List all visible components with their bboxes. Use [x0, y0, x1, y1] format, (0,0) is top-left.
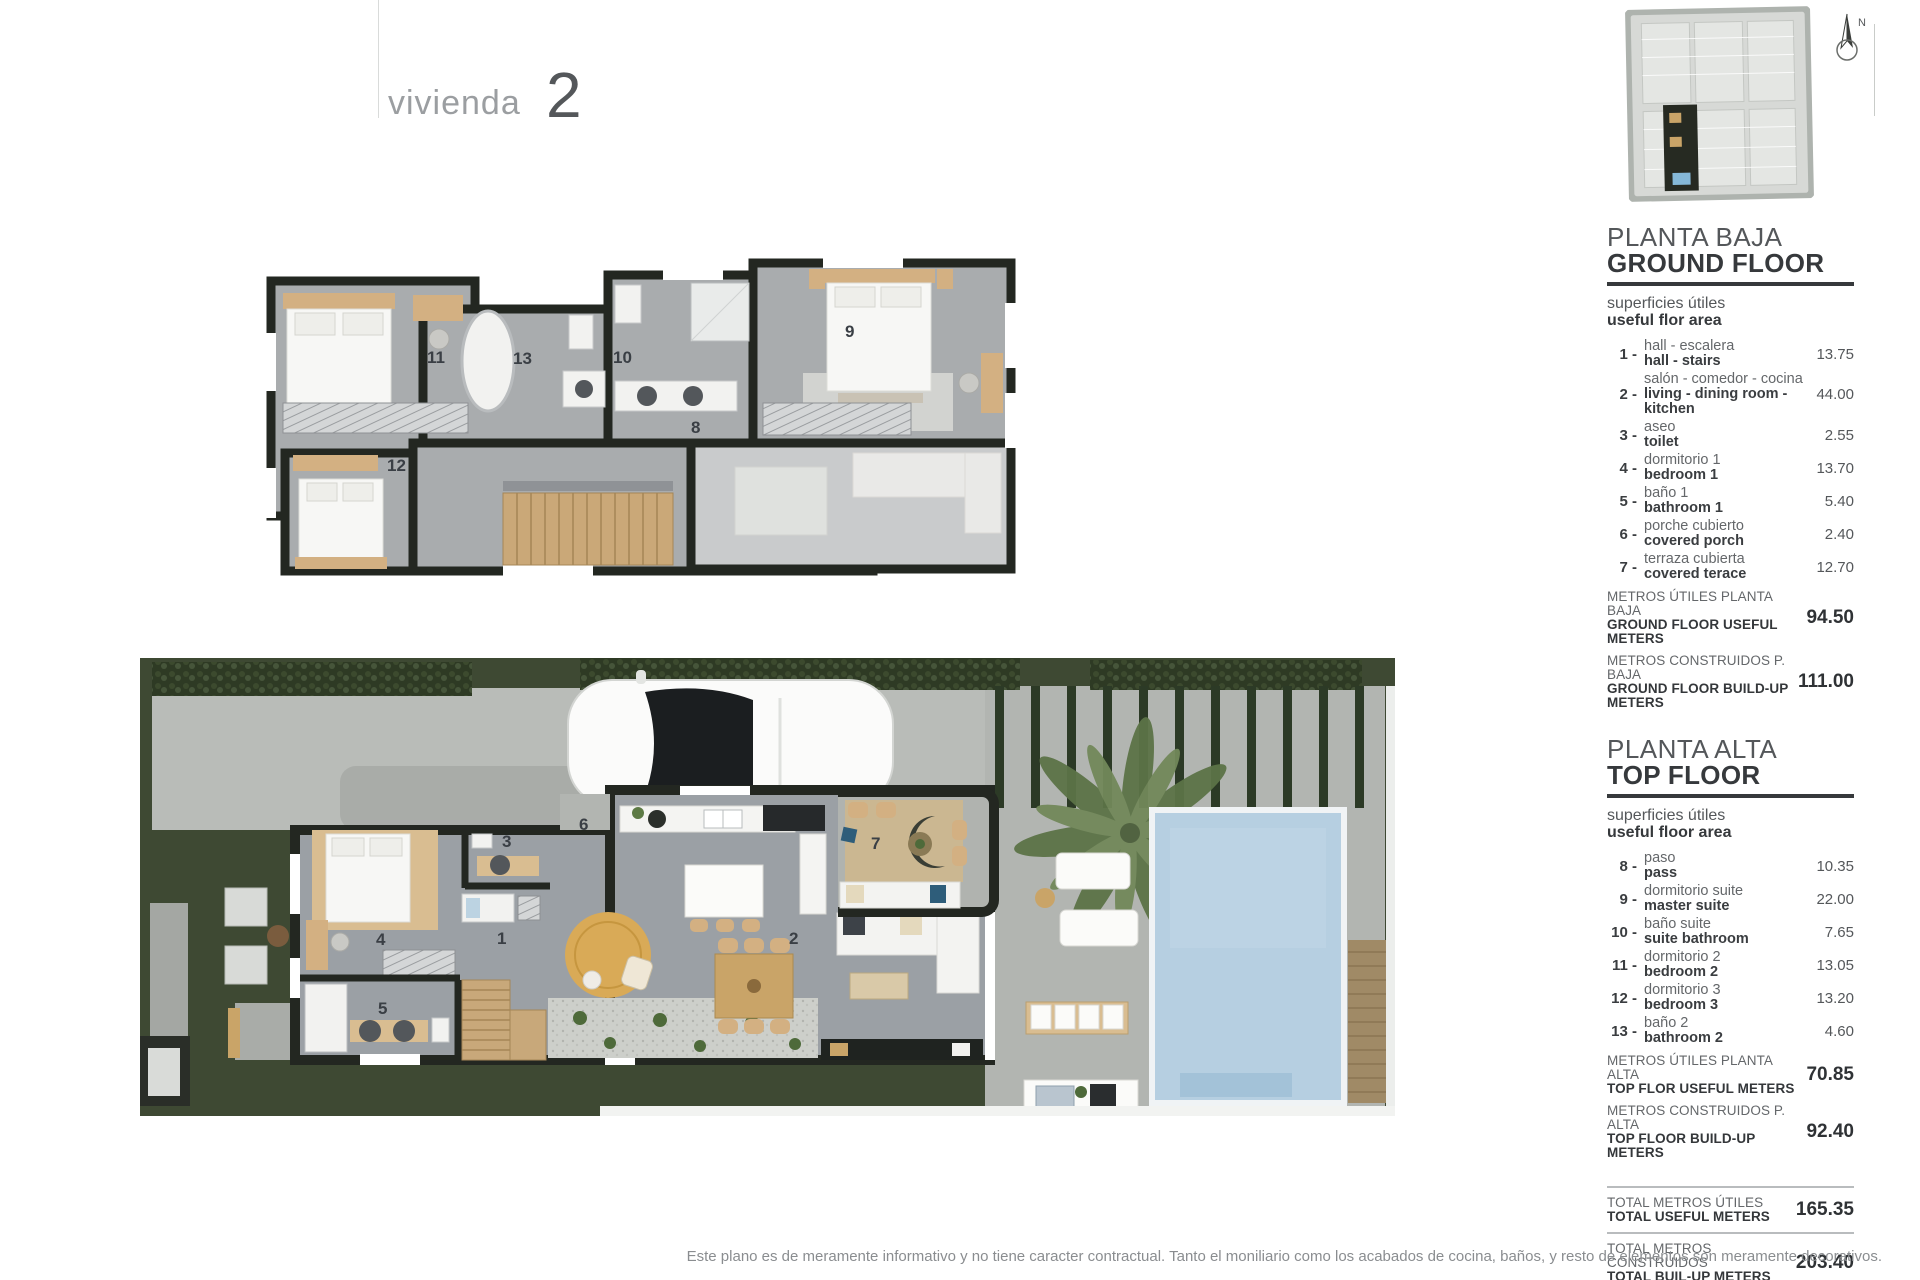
staircase	[503, 481, 673, 565]
hob	[648, 810, 666, 828]
area-row: 12 - dormitorio 3bedroom 3 13.20	[1607, 983, 1854, 1013]
row-label-en: bedroom 1	[1644, 468, 1806, 483]
floor-total-row: METROS ÚTILES PLANTA ALTATOP FLOR USEFUL…	[1607, 1054, 1854, 1096]
kitchen-appliance-block	[763, 805, 825, 831]
garden-table	[267, 925, 289, 947]
room-label-4: 4	[376, 930, 386, 949]
sink	[683, 386, 703, 406]
total-value: 94.50	[1796, 607, 1854, 629]
hedge	[152, 662, 472, 696]
sink	[575, 380, 593, 398]
total-label-es: TOTAL METROS ÚTILES	[1607, 1196, 1796, 1210]
title-divider	[378, 0, 379, 118]
room-label-5: 5	[378, 999, 387, 1018]
row-number: 10 -	[1607, 924, 1637, 941]
row-label-es: dormitorio 2	[1644, 950, 1806, 965]
total-label-en: TOP FLOR USEFUL METERS	[1607, 1082, 1796, 1096]
row-value: 5.40	[1806, 493, 1854, 510]
row-label-en: living - dining room - kitchen	[1644, 387, 1806, 417]
row-value: 13.05	[1806, 957, 1854, 974]
pouf	[583, 971, 601, 989]
row-label-es: paso	[1644, 851, 1806, 866]
total-value: 92.40	[1796, 1121, 1854, 1143]
compass-icon: N	[1830, 12, 1876, 68]
row-value: 13.20	[1806, 990, 1854, 1007]
row-label-en: covered porch	[1644, 534, 1806, 549]
row-label-es: dormitorio suite	[1644, 884, 1806, 899]
area-row: 5 - baño 1bathroom 1 5.40	[1607, 486, 1854, 516]
window	[265, 333, 276, 391]
room-label-2: 2	[789, 929, 798, 948]
area-row: 13 - baño 2bathroom 2 4.60	[1607, 1016, 1854, 1046]
row-label-es: hall - escalera	[1644, 339, 1806, 354]
gate-leaf	[148, 1048, 180, 1096]
total-value: 165.35	[1796, 1199, 1854, 1221]
chair	[429, 329, 449, 349]
window	[360, 1054, 420, 1065]
row-label-en: hall - stairs	[1644, 354, 1806, 369]
stools	[690, 919, 760, 932]
total-label-es: METROS ÚTILES PLANTA ALTA	[1607, 1054, 1796, 1082]
room-label-6: 6	[579, 815, 588, 834]
room-label-12: 12	[387, 456, 406, 475]
total-label-es: METROS CONSTRUIDOS P. BAJA	[1607, 654, 1796, 682]
plot-wall	[600, 1106, 1395, 1116]
area-row: 4 - dormitorio 1bedroom 1 13.70	[1607, 453, 1854, 483]
section-title-es: PLANTA ALTA	[1607, 736, 1854, 762]
desk	[981, 353, 1003, 413]
row-label-en: covered terace	[1644, 567, 1806, 582]
closet	[518, 896, 540, 920]
desk	[293, 455, 378, 471]
hedge	[1090, 660, 1362, 690]
room-label-3: 3	[502, 832, 511, 851]
chair	[959, 373, 979, 393]
garden-armchair	[225, 946, 267, 984]
row-label-en: bathroom 1	[1644, 501, 1806, 516]
room-label-1: 1	[497, 929, 506, 948]
room-label-10: 10	[613, 348, 632, 367]
room-label-9: 9	[845, 322, 854, 341]
total-label-es: METROS ÚTILES PLANTA BAJA	[1607, 590, 1796, 618]
garden-gate	[228, 1008, 240, 1058]
row-number: 4 -	[1607, 460, 1637, 477]
page-title: vivienda	[388, 84, 521, 123]
row-label-es: aseo	[1644, 420, 1806, 435]
highlighted-unit	[1663, 104, 1699, 191]
row-number: 1 -	[1607, 346, 1637, 363]
plot-wall	[1386, 686, 1395, 1106]
wardrobe	[283, 403, 468, 433]
chair	[331, 933, 349, 951]
row-value: 13.70	[1806, 460, 1854, 477]
bed	[312, 830, 438, 930]
subtitle-es: superficies útiles	[1607, 807, 1854, 824]
unit-number: 2	[546, 58, 582, 132]
row-number: 6 -	[1607, 526, 1637, 543]
row-label-es: salón - comedor - cocina	[1644, 372, 1806, 387]
brochure-page: vivienda 2	[0, 0, 1920, 1280]
subtitle-en: useful floor area	[1607, 824, 1854, 841]
toilet	[432, 1018, 449, 1042]
row-label-es: baño 1	[1644, 486, 1806, 501]
room-label-11: 11	[427, 348, 445, 367]
sun-lounger	[1056, 853, 1130, 889]
sink	[637, 386, 657, 406]
top-floor-plan: 11 13 10 9 8 12	[263, 253, 1018, 578]
side-entry-pad	[235, 1003, 295, 1060]
toilet	[615, 285, 641, 323]
area-row: 11 - dormitorio 2bedroom 2 13.05	[1607, 950, 1854, 980]
total-label-es: METROS CONSTRUIDOS P. ALTA	[1607, 1104, 1796, 1132]
divider-line	[1874, 24, 1875, 116]
row-number: 9 -	[1607, 891, 1637, 908]
divider	[1607, 1232, 1854, 1234]
row-value: 10.35	[1806, 858, 1854, 875]
bed	[283, 293, 395, 421]
bed	[809, 269, 953, 403]
ground-floor-plan: 1 2 3 4 5 6 7	[140, 658, 1395, 1116]
row-label-es: baño suite	[1644, 917, 1806, 932]
outdoor-bench	[1026, 1002, 1128, 1034]
row-label-en: bedroom 3	[1644, 998, 1806, 1013]
row-value: 12.70	[1806, 559, 1854, 576]
room-label-13: 13	[513, 349, 532, 368]
window	[663, 270, 723, 280]
room-label-8: 8	[691, 418, 700, 437]
total-value: 111.00	[1796, 671, 1854, 693]
row-number: 3 -	[1607, 427, 1637, 444]
subtitle-es: superficies útiles	[1607, 295, 1854, 312]
row-number: 7 -	[1607, 559, 1637, 576]
window	[290, 854, 300, 914]
ghost-sofa-chaise	[965, 453, 1001, 533]
row-label-en: master suite	[1644, 899, 1806, 914]
window	[823, 257, 903, 268]
row-label-es: terraza cubierta	[1644, 552, 1806, 567]
total-label-en: GROUND FLOOR BUILD-UP METERS	[1607, 682, 1796, 710]
area-row: 9 - dormitorio suitemaster suite 22.00	[1607, 884, 1854, 914]
row-value: 2.55	[1806, 427, 1854, 444]
disclaimer-text: Este plano es de meramente informativo y…	[687, 1248, 1882, 1265]
row-number: 5 -	[1607, 493, 1637, 510]
bed	[295, 479, 387, 569]
kitchen-island	[685, 865, 763, 917]
window	[290, 958, 300, 998]
row-label-en: suite bathroom	[1644, 932, 1806, 947]
plant	[632, 807, 644, 819]
row-label-en: toilet	[1644, 435, 1806, 450]
double-vanity	[615, 381, 737, 411]
area-row: 10 - baño suitesuite bathroom 7.65	[1607, 917, 1854, 947]
row-label-en: bedroom 2	[1644, 965, 1806, 980]
bathtub	[462, 311, 514, 411]
total-label-en: TOP FLOOR BUILD-UP METERS	[1607, 1132, 1796, 1160]
site-plan-thumbnail	[1625, 6, 1814, 202]
desk	[413, 295, 463, 321]
total-label-en: GROUND FLOOR USEFUL METERS	[1607, 618, 1796, 646]
sliding-glass-door	[985, 912, 995, 1060]
row-label-en: pass	[1644, 866, 1806, 881]
desk	[306, 920, 328, 970]
area-table-sidebar: PLANTA BAJA GROUND FLOOR superficies úti…	[1607, 224, 1854, 1280]
sink	[359, 1020, 381, 1042]
garden-armchair	[225, 888, 267, 926]
floor-total-row: METROS CONSTRUIDOS P. BAJAGROUND FLOOR B…	[1607, 654, 1854, 710]
wardrobe	[763, 403, 911, 435]
section-title-en: TOP FLOOR	[1607, 762, 1854, 789]
toilet	[472, 834, 492, 848]
row-value: 4.60	[1806, 1023, 1854, 1040]
section-title-en: GROUND FLOOR	[1607, 250, 1854, 277]
toilet	[569, 315, 593, 349]
room-label-7: 7	[871, 834, 880, 853]
tall-units	[800, 834, 826, 914]
row-value: 2.40	[1806, 526, 1854, 543]
sink	[490, 855, 510, 875]
area-row: 6 - porche cubiertocovered porch 2.40	[1607, 519, 1854, 549]
row-number: 11 -	[1607, 957, 1637, 974]
row-number: 8 -	[1607, 858, 1637, 875]
sink	[393, 1020, 415, 1042]
row-number: 13 -	[1607, 1023, 1637, 1040]
floor-total-row: METROS CONSTRUIDOS P. ALTATOP FLOOR BUIL…	[1607, 1104, 1854, 1160]
row-label-es: dormitorio 3	[1644, 983, 1806, 998]
row-value: 44.00	[1806, 386, 1854, 403]
area-row: 7 - terraza cubiertacovered terace 12.70	[1607, 552, 1854, 582]
window	[1005, 393, 1016, 448]
window	[680, 786, 750, 795]
section-rule	[1607, 794, 1854, 798]
ghost-dining-table	[735, 467, 827, 535]
window	[503, 565, 593, 576]
window	[265, 468, 276, 518]
row-label-es: baño 2	[1644, 1016, 1806, 1031]
covered-terrace	[838, 792, 994, 912]
total-label-en: TOTAL USEFUL METERS	[1607, 1210, 1796, 1224]
shower	[305, 984, 347, 1052]
row-label-en: bathroom 2	[1644, 1031, 1806, 1046]
side-table	[1035, 888, 1055, 908]
row-number: 2 -	[1607, 386, 1637, 403]
sun-lounger	[1060, 910, 1138, 946]
pool	[1152, 810, 1344, 1103]
row-value: 13.75	[1806, 346, 1854, 363]
compass-north-label: N	[1858, 17, 1866, 29]
row-value: 7.65	[1806, 924, 1854, 941]
total-value: 70.85	[1796, 1064, 1854, 1086]
row-number: 12 -	[1607, 990, 1637, 1007]
wood-deck	[1348, 940, 1386, 1103]
area-row: 2 - salón - comedor - cocinaliving - din…	[1607, 372, 1854, 417]
row-label-es: dormitorio 1	[1644, 453, 1806, 468]
coffee-table	[850, 973, 908, 999]
area-row: 3 - aseotoilet 2.55	[1607, 420, 1854, 450]
area-row: 1 - hall - escalerahall - stairs 13.75	[1607, 339, 1854, 369]
window	[1005, 303, 1016, 368]
dining-set	[715, 938, 793, 1034]
subtitle-en: useful flor area	[1607, 312, 1854, 329]
floor-total-row: METROS ÚTILES PLANTA BAJAGROUND FLOOR US…	[1607, 590, 1854, 646]
total-label-en: TOTAL BUIL-UP METERS	[1607, 1270, 1796, 1280]
divider	[1607, 1186, 1854, 1188]
section-title-es: PLANTA BAJA	[1607, 224, 1854, 250]
section-rule	[1607, 282, 1854, 286]
row-value: 22.00	[1806, 891, 1854, 908]
area-row: 8 - pasopass 10.35	[1607, 851, 1854, 881]
grand-total-row: TOTAL METROS ÚTILESTOTAL USEFUL METERS 1…	[1607, 1196, 1854, 1224]
row-label-es: porche cubierto	[1644, 519, 1806, 534]
